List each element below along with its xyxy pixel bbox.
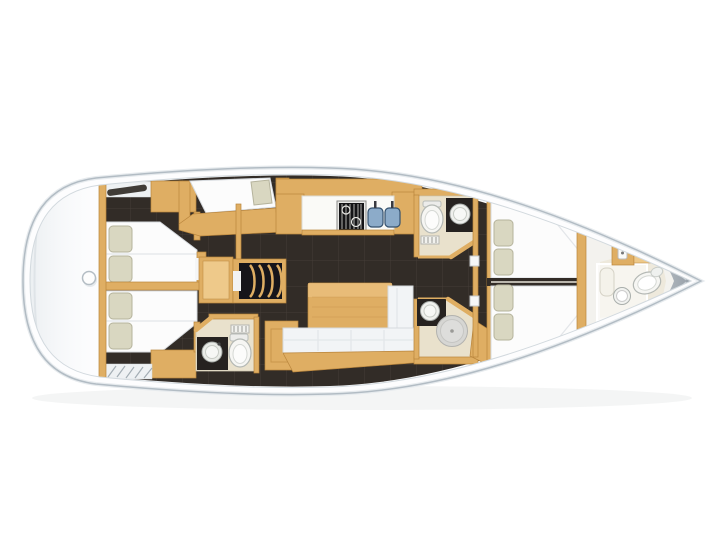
pillow bbox=[109, 256, 132, 282]
pillow bbox=[494, 220, 513, 246]
pillow bbox=[494, 314, 513, 340]
forward-heads-port bbox=[414, 189, 478, 257]
faucet bbox=[374, 201, 377, 208]
yacht-floorplan-image bbox=[0, 0, 720, 540]
washbasin-bowl bbox=[454, 208, 467, 221]
cabin-divider-wall bbox=[100, 282, 204, 290]
pillow bbox=[109, 293, 132, 319]
faucet bbox=[391, 201, 394, 208]
pillow bbox=[251, 180, 272, 205]
sink-basin bbox=[368, 208, 383, 227]
bench bbox=[600, 268, 614, 296]
galley bbox=[276, 179, 422, 235]
partition-wall bbox=[236, 204, 241, 260]
nav-desk-top bbox=[203, 261, 229, 299]
shower-drain bbox=[450, 329, 454, 333]
washbasin-bowl bbox=[424, 305, 436, 317]
pillow bbox=[109, 226, 132, 252]
sink-basin bbox=[385, 208, 400, 227]
knob-dot bbox=[621, 252, 624, 255]
door-hinge bbox=[470, 256, 479, 266]
wardrobe bbox=[151, 350, 196, 378]
washbasin-bowl bbox=[206, 346, 219, 359]
stern-bulkhead bbox=[99, 182, 106, 385]
pillow bbox=[109, 323, 132, 349]
sofa-side bbox=[388, 286, 413, 330]
floorplan-svg bbox=[0, 0, 720, 540]
forward-bulkhead bbox=[577, 224, 586, 340]
faucet bbox=[217, 342, 220, 345]
heads-wall bbox=[209, 314, 258, 319]
toilet-seat bbox=[233, 345, 247, 364]
washbasin-bowl bbox=[617, 291, 628, 302]
aft-heads bbox=[196, 314, 259, 373]
pillow bbox=[494, 285, 513, 311]
companionway-stairs bbox=[233, 259, 286, 303]
stove bbox=[337, 201, 366, 232]
stern-winch bbox=[83, 272, 96, 285]
corridor-wall bbox=[473, 195, 478, 357]
heads-wall bbox=[414, 195, 419, 257]
interior bbox=[24, 171, 698, 390]
stairs-landing bbox=[233, 271, 241, 291]
heads-wall bbox=[414, 357, 478, 364]
pillow bbox=[494, 249, 513, 275]
door-hinge bbox=[470, 296, 479, 306]
lower-cabinet bbox=[302, 230, 394, 235]
table-highlight bbox=[308, 283, 392, 297]
port-cabinet bbox=[276, 194, 304, 234]
toilet-seat bbox=[425, 211, 439, 230]
heads-wall bbox=[254, 317, 259, 373]
